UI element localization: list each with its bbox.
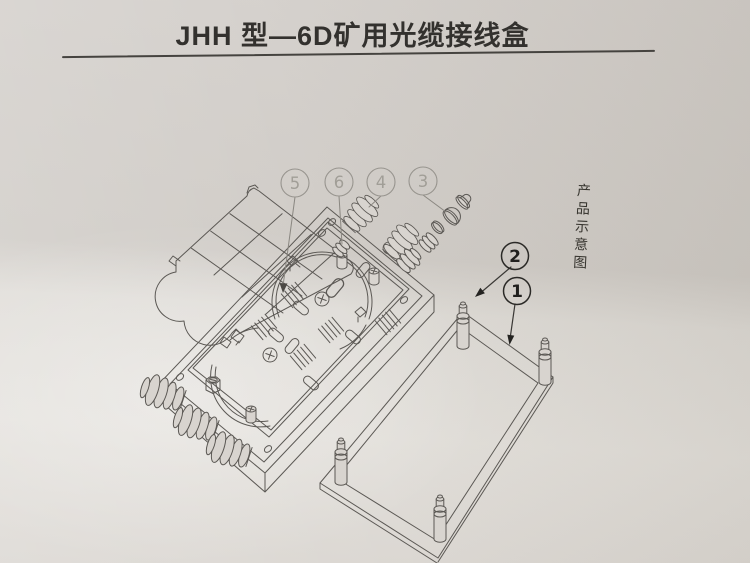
arrowhead [507,335,514,345]
stand-post [434,495,446,542]
callout-number: 3 [418,172,429,191]
stand-post [335,438,347,485]
cable-glands [137,190,424,472]
frame-corner-posts [335,302,551,542]
callout-number: 2 [509,247,521,267]
stand-post [457,302,469,349]
exploded-view-diagram: 5 6 4 3 2 1 [0,0,750,563]
callout-number: 1 [511,282,523,302]
pan-screw [246,406,256,423]
cable-gland [339,190,384,236]
tray-screw [263,348,277,362]
splice-tray [188,222,409,437]
cap-nut [441,204,464,227]
callout-6: 6 [325,168,353,244]
arrowhead [475,288,485,297]
callout-number: 5 [290,174,301,193]
box-cover [155,185,353,348]
tray-screw [315,292,329,306]
sealing-plug [454,190,475,211]
tray-clips [287,256,366,322]
callout-number: 4 [376,173,387,192]
photographed-page: JHH 型—6D矿用光缆接线盒 产品示意图 [0,0,750,563]
arrowhead [280,283,288,293]
tray-slots [267,261,372,392]
stand-post [539,338,551,385]
compression-sleeve [417,231,440,254]
pan-screw [369,268,379,285]
callout-number: 6 [334,173,345,192]
seal-ring [430,219,446,235]
callout-1: 1 [504,278,531,346]
callout-3: 3 [409,167,446,212]
cover-grid [191,214,335,314]
